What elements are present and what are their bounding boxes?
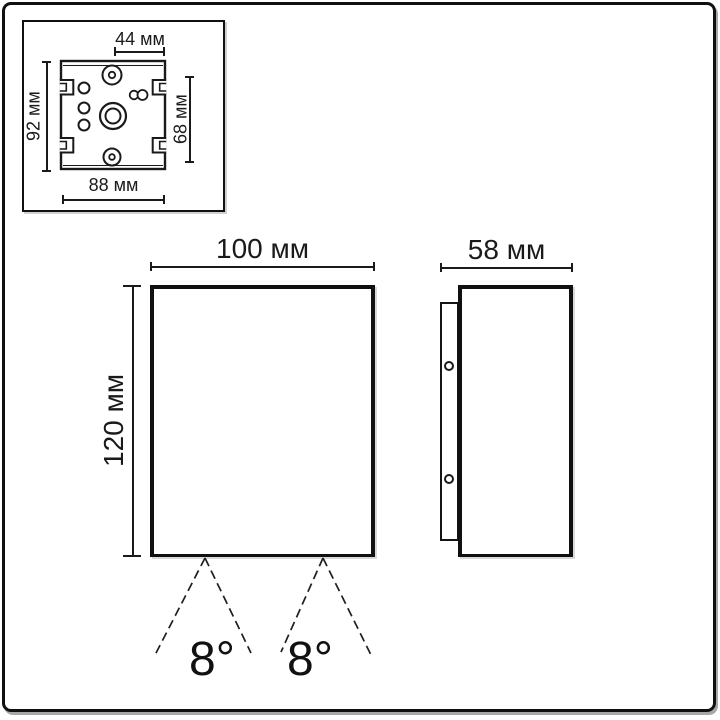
side-view-body [458, 285, 573, 557]
screw-hole-top [444, 361, 454, 371]
side-depth-dim-line [440, 267, 573, 269]
hole-left-2 [79, 103, 90, 114]
inset-dim-top-line [114, 51, 165, 53]
screw-hole-bottom [444, 474, 454, 484]
technical-drawing-canvas: 44 мм 92 мм 68 мм 88 мм 100 мм 120 мм 58… [0, 0, 720, 720]
side-depth-label: 58 мм [440, 234, 573, 266]
mounting-plate-inset: 44 мм 92 мм 68 мм 88 мм [22, 20, 225, 212]
front-height-label: 120 мм [96, 285, 132, 557]
inset-dim-left-label: 92 мм [24, 61, 44, 172]
beam-angle-right-label: 8° [270, 632, 350, 688]
side-view-mounting-strip [440, 302, 459, 541]
inset-dim-right-label: 68 мм [171, 76, 191, 163]
inset-dim-right-line [189, 76, 191, 163]
beam-angle-left-label: 8° [172, 632, 252, 688]
inset-dim-left-line [46, 61, 48, 172]
inset-dim-bottom-line [62, 199, 165, 201]
front-view-body [150, 285, 375, 557]
inset-dim-bottom-label: 88 мм [62, 174, 165, 196]
hole-right-pair-2 [138, 90, 148, 100]
hole-left-1 [79, 83, 90, 94]
front-width-dim-line [150, 266, 375, 268]
front-height-dim-line [132, 285, 134, 557]
hole-left-3 [79, 120, 90, 131]
inset-dim-top-label: 44 мм [109, 28, 171, 50]
front-width-label: 100 мм [150, 233, 375, 265]
